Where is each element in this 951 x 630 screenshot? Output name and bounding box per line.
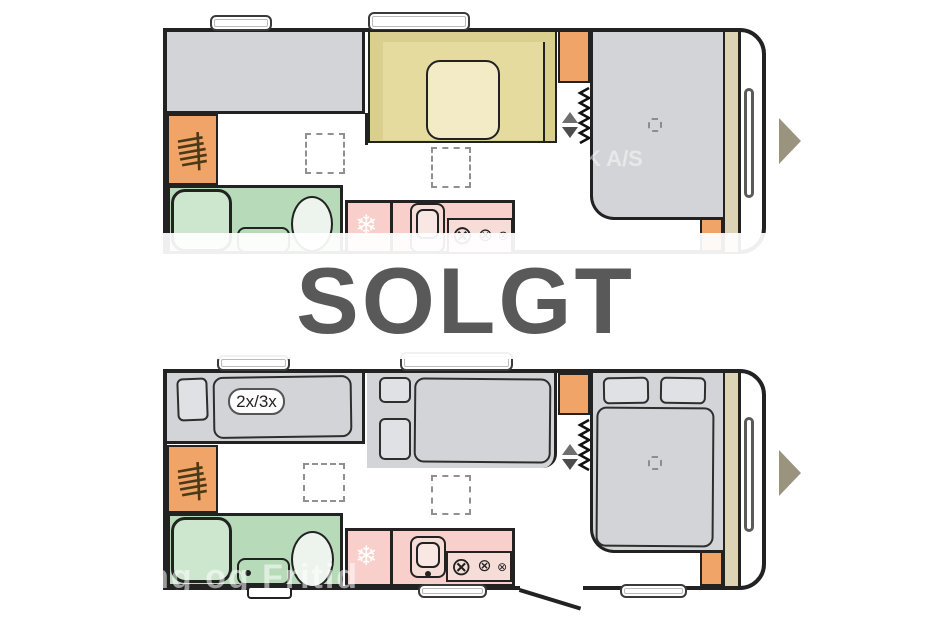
pillow [603,377,649,405]
floor-hatch [305,133,345,174]
stove: ⊗ ⊗ ⊗ [446,551,512,582]
faucet-dot [425,571,431,577]
sold-banner-text: SOLGT [296,237,635,355]
bunk-capacity-text: 2x/3x [236,392,277,412]
table-mount-marker [648,118,662,132]
middle-bed-mattress [414,377,552,463]
side-cabinet-strip [723,373,741,586]
dinette-table [426,60,500,140]
slide-up-arrow-icon [562,444,578,455]
pillow [379,418,411,460]
pillow [660,377,706,405]
table-mount-marker [648,456,662,470]
floor-hatch [431,475,471,515]
direction-arrow-icon [779,118,801,164]
watermark: K A/S [585,146,643,172]
pillow [176,377,208,421]
wardrobe [167,114,218,185]
front-bed [167,32,365,114]
cabinet [558,30,590,83]
slide-down-arrow-icon [562,127,578,138]
wardrobe-hanger-icon [174,460,214,504]
entry-door [744,417,754,532]
burner-icon: ⊗ [477,558,491,575]
bunk-capacity-label: 2x/3x [228,388,285,415]
window [418,584,487,598]
burner-icon: ⊗ [451,554,472,579]
sold-banner: SOLGT [0,233,951,359]
rear-bed-mattress [596,407,715,548]
window [368,12,470,31]
wall-stub [362,373,365,405]
kitchen-sink [410,536,446,578]
wall-stub [365,113,368,145]
floor-hatch [303,463,345,502]
window [620,584,687,598]
wardrobe-hanger-icon [174,130,214,174]
direction-arrow-icon [779,450,801,496]
side-cabinet-strip [723,32,741,252]
floor-hatch [431,147,471,188]
dinette-seat-edge [543,42,545,141]
wardrobe [167,445,218,513]
slide-down-arrow-icon [562,459,578,470]
sink-basin [416,542,440,568]
burner-icon: ⊗ [497,561,507,573]
sold-caravan-floorplan-image: ❄ ⊗ ⊗ ⊗ K A/S 2x/3x [0,0,951,630]
entry-door [744,88,754,198]
slide-up-arrow-icon [562,112,578,123]
cabinet [558,373,590,415]
pillow [379,377,411,403]
window [210,15,272,31]
kitchen-divider [390,528,393,587]
watermark: g Camping og Fritid [0,558,359,597]
cabinet [700,551,723,586]
